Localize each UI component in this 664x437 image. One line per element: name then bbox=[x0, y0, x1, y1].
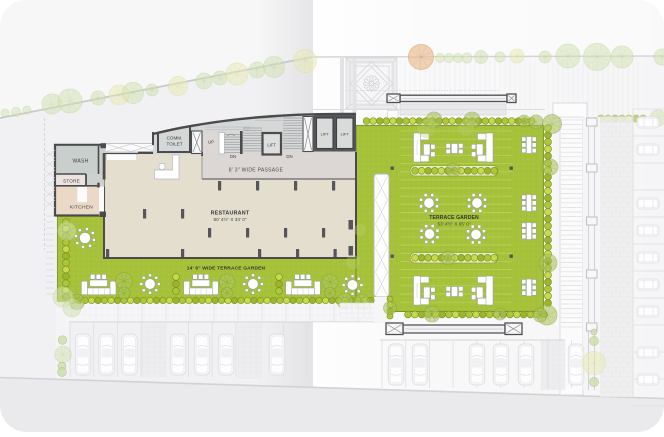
svg-text:COMM.: COMM. bbox=[167, 136, 183, 141]
svg-text:TOILET: TOILET bbox=[167, 142, 183, 147]
svg-text:TERRACE GARDEN: TERRACE GARDEN bbox=[429, 215, 479, 221]
svg-text:8' 3" WIDE PASSAGE: 8' 3" WIDE PASSAGE bbox=[229, 168, 284, 174]
svg-text:LIFT: LIFT bbox=[341, 132, 350, 137]
svg-text:STORE: STORE bbox=[63, 178, 80, 183]
svg-text:RESTAURANT: RESTAURANT bbox=[211, 211, 250, 217]
svg-text:DN: DN bbox=[230, 154, 236, 159]
svg-text:WASH: WASH bbox=[72, 159, 88, 165]
svg-text:53' 4½" X 65' 0": 53' 4½" X 65' 0" bbox=[437, 221, 470, 227]
svg-text:DN: DN bbox=[286, 154, 292, 159]
svg-text:LIFT: LIFT bbox=[321, 132, 330, 137]
svg-text:LIFT: LIFT bbox=[267, 143, 276, 148]
svg-text:14' 6" WIDE TERRACE GARDEN: 14' 6" WIDE TERRACE GARDEN bbox=[187, 266, 266, 272]
svg-text:80' 4½" X 33' 0": 80' 4½" X 33' 0" bbox=[213, 216, 246, 222]
svg-text:UP: UP bbox=[208, 140, 214, 145]
svg-text:KITCHEN: KITCHEN bbox=[70, 205, 93, 211]
